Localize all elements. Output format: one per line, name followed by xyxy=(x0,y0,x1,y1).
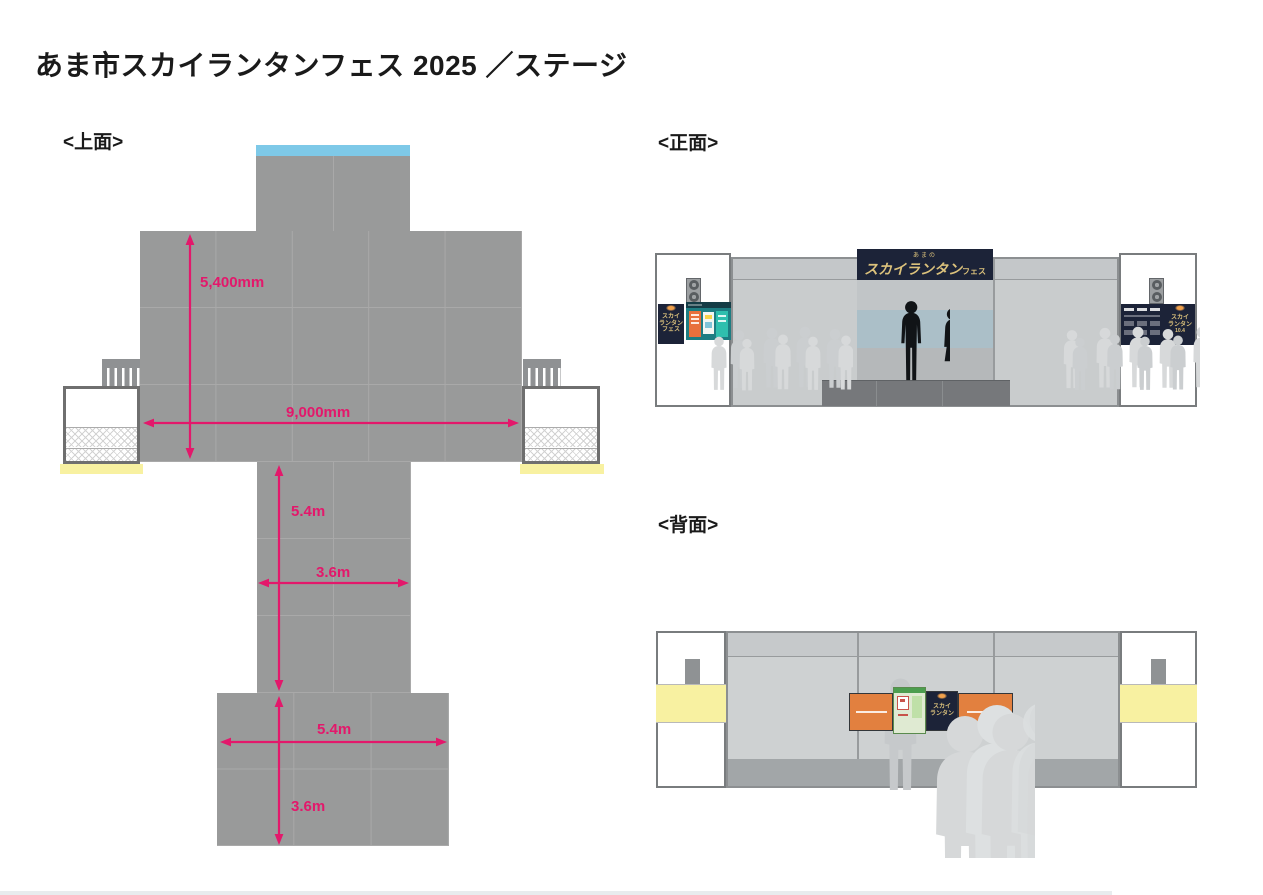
sign-suffix-text: フェス xyxy=(962,267,986,276)
stage-drawing-canvas: あま市スカイランタンフェス 2025 ／ステージ <上面> xyxy=(0,0,1263,895)
dimension-arrow-stage-depth xyxy=(186,234,195,459)
audience-front-right xyxy=(1000,325,1200,409)
dimension-arrow-runway-length xyxy=(275,465,284,691)
speaker-left-icon xyxy=(686,278,701,304)
lantern-glow-icon xyxy=(666,305,676,311)
stage-header-sign: あまの スカイランタンフェス xyxy=(857,249,993,280)
dimension-arrow-platform-depth xyxy=(275,696,284,845)
back-wall-top-band xyxy=(728,633,1118,657)
back-post-left xyxy=(685,659,700,684)
dim-stage-width: 9,000mm xyxy=(286,404,350,421)
yellow-band-left xyxy=(656,684,726,723)
audience-back xyxy=(835,695,1035,858)
front-view-label: <正面> xyxy=(658,128,718,155)
back-tower-left xyxy=(656,631,726,788)
sign-small-text: あまの xyxy=(913,250,937,259)
back-tower-right xyxy=(1120,631,1197,788)
lantern-glow-icon xyxy=(1175,305,1185,311)
sign-main-text: スカイランタン xyxy=(864,263,962,278)
dim-runway-width: 3.6m xyxy=(316,564,350,581)
banner-text: スカイ xyxy=(662,314,680,321)
performer-silhouettes xyxy=(870,298,950,390)
back-view-label: <背面> xyxy=(658,510,718,537)
banner-text: スカイ xyxy=(1171,315,1189,322)
window-edge-strip xyxy=(0,891,1112,895)
dim-platform-width: 5.4m xyxy=(317,721,351,738)
audience-front-left xyxy=(653,325,853,409)
dimension-arrow-platform-width xyxy=(220,738,447,747)
dim-runway-length: 5.4m xyxy=(291,503,325,520)
dim-stage-depth: 5,400mm xyxy=(200,274,264,291)
dim-platform-depth: 3.6m xyxy=(291,798,325,815)
speaker-right-icon xyxy=(1149,278,1164,304)
back-post-right xyxy=(1151,659,1166,684)
yellow-band-right xyxy=(1120,684,1197,723)
